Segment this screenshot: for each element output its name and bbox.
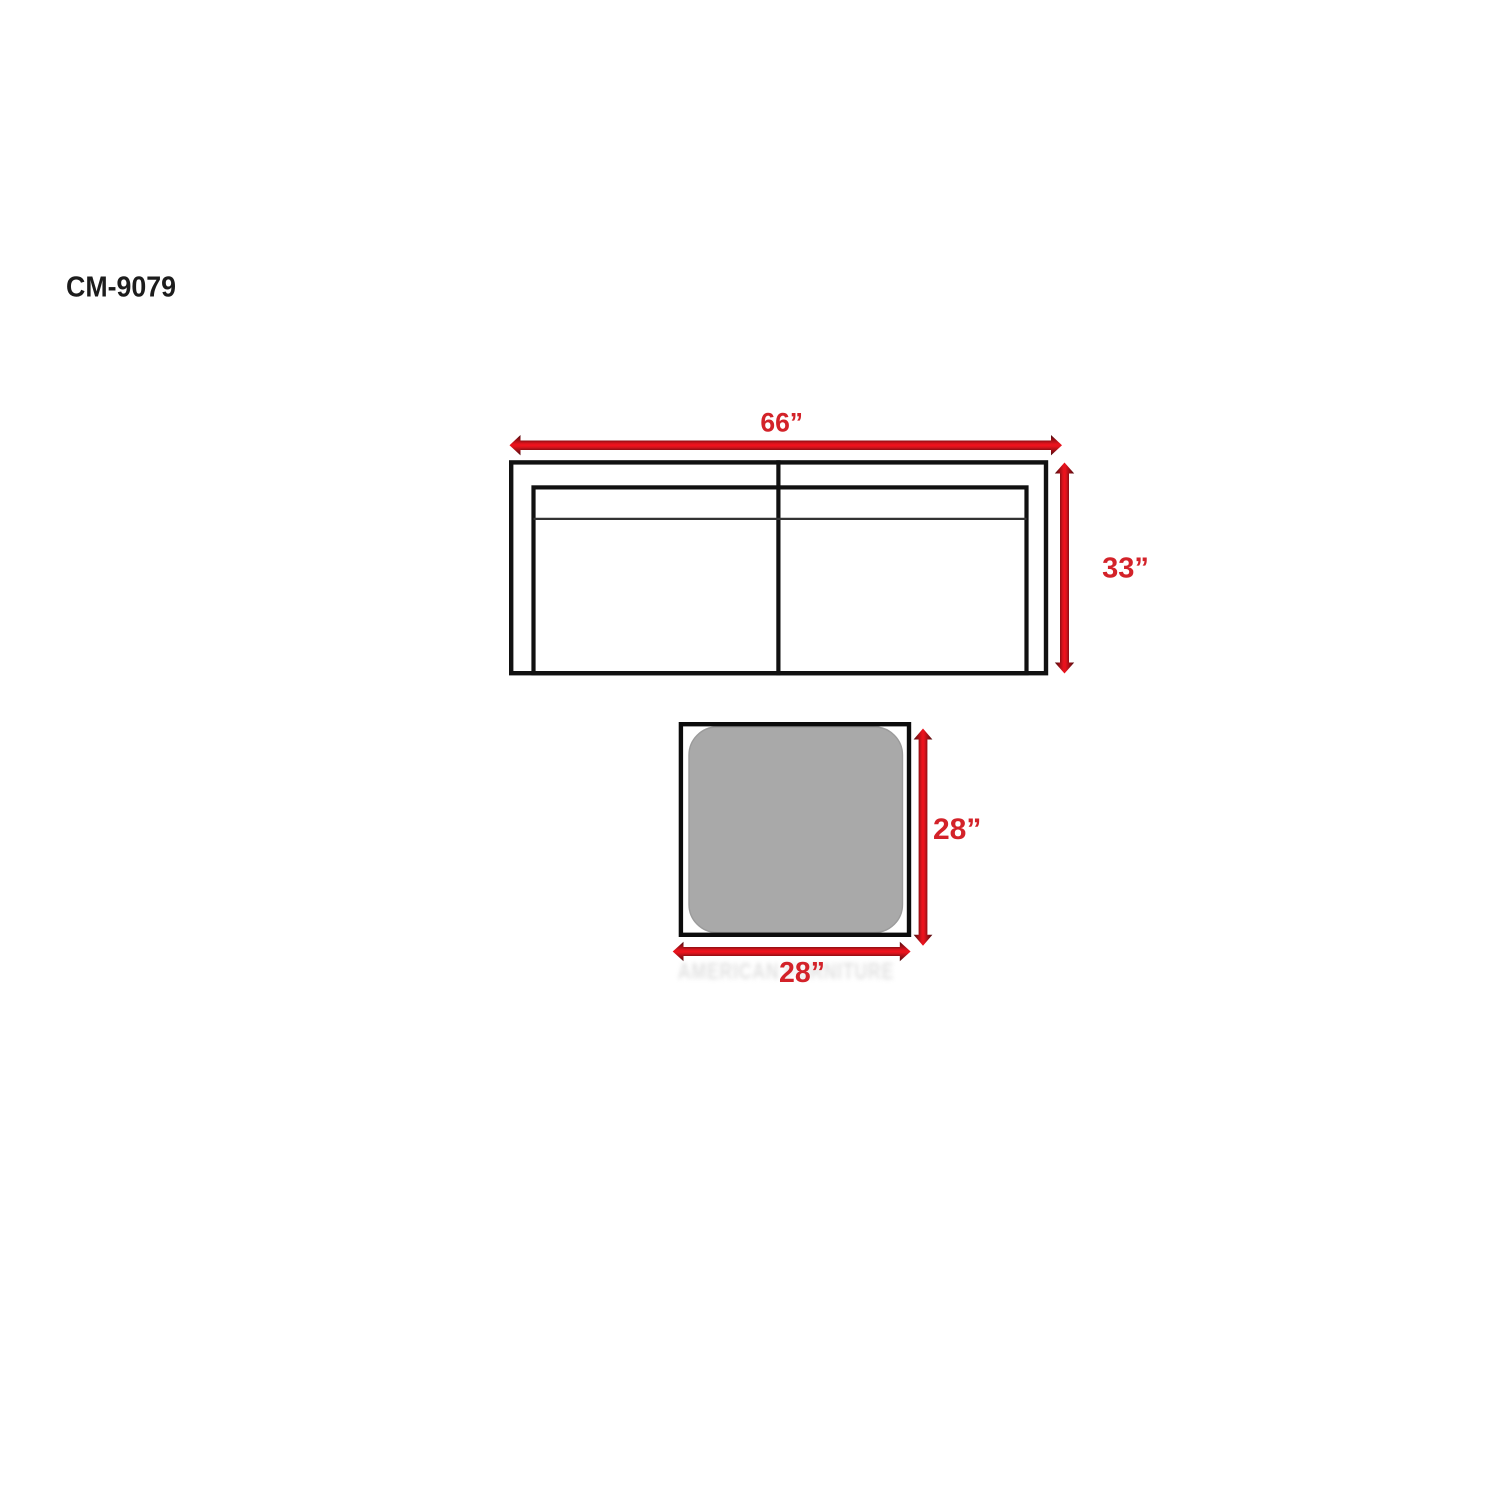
- svg-text:66”: 66”: [760, 408, 803, 438]
- svg-text:CM-9079: CM-9079: [66, 272, 176, 304]
- svg-text:28”: 28”: [933, 813, 981, 846]
- svg-text:33”: 33”: [1102, 553, 1149, 585]
- svg-text:28”: 28”: [779, 957, 825, 989]
